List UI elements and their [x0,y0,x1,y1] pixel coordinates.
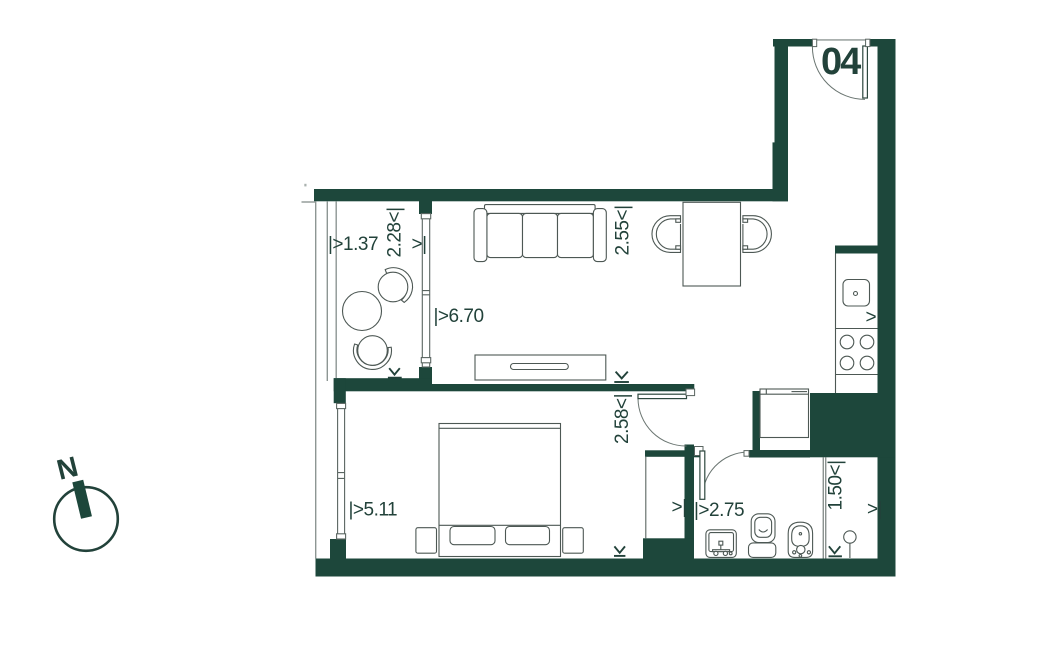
svg-text:>|: >| [866,307,881,328]
svg-text:04: 04 [821,41,861,83]
svg-text:2.58<|: 2.58<| [612,394,633,444]
svg-text:2.55<|: 2.55<| [613,205,634,255]
svg-text:>|: >| [412,234,427,255]
svg-text:2.28<|: 2.28<| [385,207,406,257]
svg-text:>|: >| [672,497,687,518]
svg-text:|>1.37: |>1.37 [328,234,378,255]
svg-text:1.50<|: 1.50<| [826,460,847,510]
svg-text:>|: >| [867,499,882,520]
svg-text:|>5.11: |>5.11 [349,500,398,521]
svg-text:|>2.75: |>2.75 [694,500,744,521]
svg-text:|>6.70: |>6.70 [434,306,484,327]
